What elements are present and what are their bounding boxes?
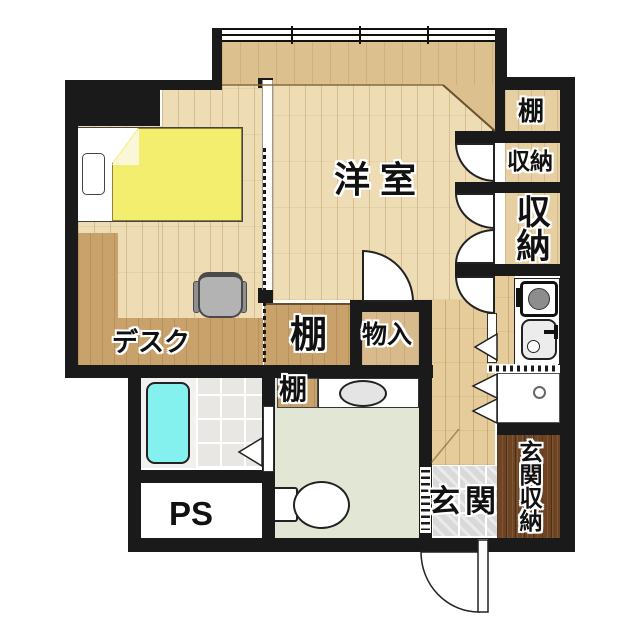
utility-door-leaf	[473, 399, 497, 423]
entrance-step-line	[431, 429, 459, 463]
room-label-western: 洋室	[334, 162, 426, 198]
floor-plan: 洋室 棚 収納 収納 棚 物入 棚 デスク PS 玄関 玄関収納	[0, 0, 640, 640]
hall-door-leaf	[475, 334, 497, 360]
room-label-pipe-space: PS	[169, 497, 213, 530]
entry-door-leaf	[478, 540, 488, 612]
room-label-shelf-washroom: 棚	[279, 376, 307, 404]
room-label-storage-lower: 収納	[513, 194, 547, 264]
bath-door-leaf	[239, 438, 262, 466]
utility-door-leaf	[473, 374, 497, 398]
room-label-shelf-top-right: 棚	[518, 98, 544, 124]
room-label-entrance: 玄関	[429, 486, 501, 517]
room-label-storage-upper: 収納	[507, 150, 553, 173]
room-label-entrance-storage: 玄関収納	[517, 440, 540, 538]
room-label-desk: デスク	[112, 329, 190, 355]
room-label-storage-closet: 物入	[362, 323, 412, 348]
entry-door-swing	[421, 552, 479, 612]
room-label-shelf-middle: 棚	[290, 316, 327, 353]
